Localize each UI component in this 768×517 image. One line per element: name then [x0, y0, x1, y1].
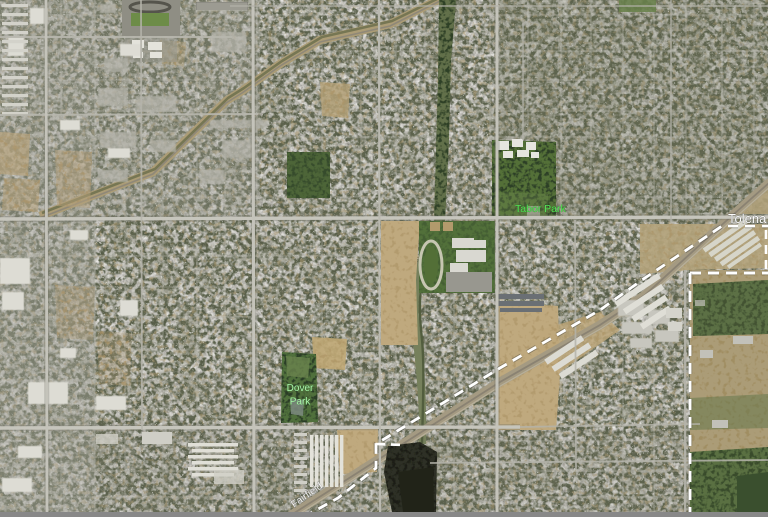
svg-text:Tolena: Tolena	[728, 211, 767, 226]
svg-text:Tabor Park: Tabor Park	[515, 203, 567, 215]
svg-text:Dover: Dover	[287, 383, 314, 394]
svg-text:Park: Park	[290, 397, 312, 408]
